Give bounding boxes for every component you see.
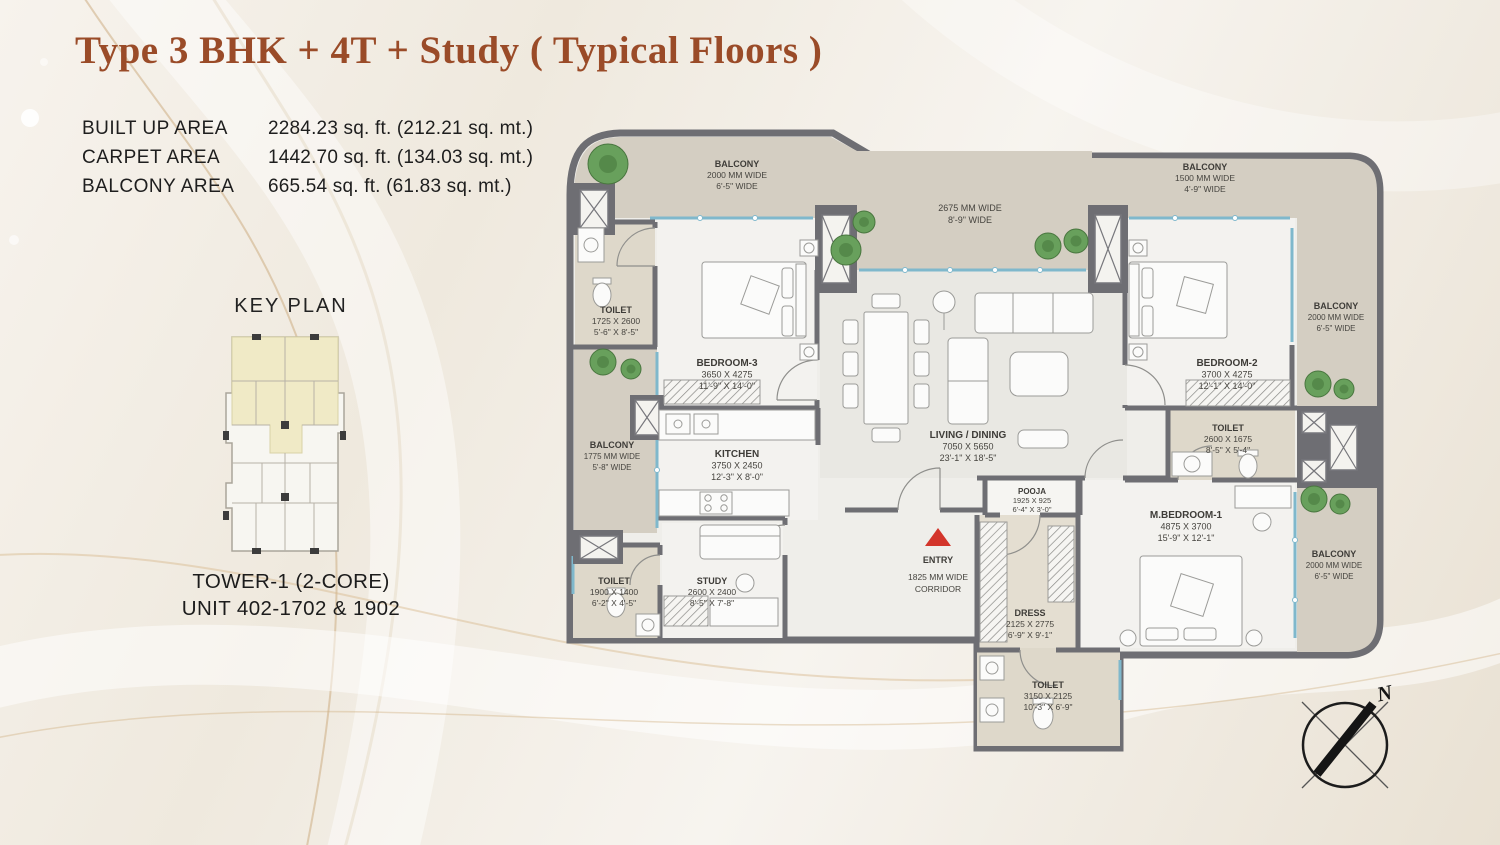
svg-text:1925 X 925: 1925 X 925 xyxy=(1013,496,1051,505)
svg-text:2600 X 2400: 2600 X 2400 xyxy=(688,587,736,597)
compass-icon: N xyxy=(1302,680,1395,788)
brochure-page: Type 3 BHK + 4T + Study ( Typical Floors… xyxy=(0,0,1500,845)
svg-text:4'-9" WIDE: 4'-9" WIDE xyxy=(1184,184,1226,194)
svg-text:BALCONY: BALCONY xyxy=(1314,301,1359,311)
svg-text:1725 X 2600: 1725 X 2600 xyxy=(592,316,640,326)
svg-text:6'-9" X 9'-1": 6'-9" X 9'-1" xyxy=(1008,630,1052,640)
svg-text:TOILET: TOILET xyxy=(1032,680,1064,690)
svg-text:2675 MM WIDE: 2675 MM WIDE xyxy=(938,203,1002,213)
svg-text:23'-1" X 18'-5": 23'-1" X 18'-5" xyxy=(940,453,997,463)
svg-text:3150 X 2125: 3150 X 2125 xyxy=(1024,691,1072,701)
svg-text:2000 MM WIDE: 2000 MM WIDE xyxy=(1306,561,1362,570)
area-value: 665.54 sq. ft. (61.83 sq. mt.) xyxy=(268,172,512,201)
svg-text:2600 X 1675: 2600 X 1675 xyxy=(1204,434,1252,444)
svg-text:8'-5" X 7'-8": 8'-5" X 7'-8" xyxy=(690,598,734,608)
svg-text:TOILET: TOILET xyxy=(1212,423,1244,433)
svg-text:7050 X 5650: 7050 X 5650 xyxy=(942,442,993,452)
area-label: CARPET AREA xyxy=(82,143,268,172)
svg-text:4875 X 3700: 4875 X 3700 xyxy=(1160,522,1211,532)
svg-text:11'-9" X 14'-0": 11'-9" X 14'-0" xyxy=(699,381,755,391)
svg-text:6'-4" X 3'-0": 6'-4" X 3'-0" xyxy=(1012,505,1051,514)
key-plan-title: KEY PLAN xyxy=(151,295,431,318)
unit-label: UNIT 402-1702 & 1902 xyxy=(131,595,451,622)
svg-text:3750 X 2450: 3750 X 2450 xyxy=(711,461,762,471)
svg-text:TOILET: TOILET xyxy=(598,576,630,586)
svg-text:2000 MM WIDE: 2000 MM WIDE xyxy=(707,170,767,180)
svg-text:1900 X 1400: 1900 X 1400 xyxy=(590,587,638,597)
area-table: BUILT UP AREA 2284.23 sq. ft. (212.21 sq… xyxy=(82,114,533,201)
room-label: BALCONY xyxy=(715,159,760,169)
floor-plan: BALCONY 2000 MM WIDE 6'-5" WIDE 2675 MM … xyxy=(558,113,1413,813)
svg-text:15'-9" X 12'-1": 15'-9" X 12'-1" xyxy=(1158,533,1215,543)
svg-text:BEDROOM-3: BEDROOM-3 xyxy=(696,358,758,369)
svg-text:DRESS: DRESS xyxy=(1014,608,1045,618)
svg-text:3700 X 4275: 3700 X 4275 xyxy=(1201,370,1252,380)
area-label: BUILT UP AREA xyxy=(82,114,268,143)
svg-text:CORRIDOR: CORRIDOR xyxy=(915,584,961,594)
svg-text:5'-8" WIDE: 5'-8" WIDE xyxy=(592,463,631,472)
svg-text:M.BEDROOM-1: M.BEDROOM-1 xyxy=(1150,510,1223,521)
svg-text:1500 MM WIDE: 1500 MM WIDE xyxy=(1175,173,1235,183)
svg-text:6'-5" WIDE: 6'-5" WIDE xyxy=(1314,572,1353,581)
area-row: CARPET AREA 1442.70 sq. ft. (134.03 sq. … xyxy=(82,143,533,172)
svg-text:1825 MM WIDE: 1825 MM WIDE xyxy=(908,572,968,582)
svg-text:8'-9" WIDE: 8'-9" WIDE xyxy=(948,215,992,225)
svg-text:TOILET: TOILET xyxy=(600,305,632,315)
svg-text:LIVING / DINING: LIVING / DINING xyxy=(930,430,1007,441)
page-title: Type 3 BHK + 4T + Study ( Typical Floors… xyxy=(75,28,975,73)
svg-text:6'-2" X 4'-5": 6'-2" X 4'-5" xyxy=(592,598,636,608)
svg-text:2000 MM WIDE: 2000 MM WIDE xyxy=(1308,313,1364,322)
svg-text:BALCONY: BALCONY xyxy=(1183,162,1228,172)
svg-text:STUDY: STUDY xyxy=(697,576,728,586)
area-value: 1442.70 sq. ft. (134.03 sq. mt.) xyxy=(268,143,533,172)
svg-text:6'-5" WIDE: 6'-5" WIDE xyxy=(716,181,758,191)
svg-text:5'-6" X 8'-5": 5'-6" X 8'-5" xyxy=(594,327,638,337)
svg-text:2125 X 2775: 2125 X 2775 xyxy=(1006,619,1054,629)
key-plan-diagram xyxy=(222,333,350,558)
tower-label: TOWER-1 (2-CORE) xyxy=(131,568,451,595)
svg-text:12'-3" X 8'-0": 12'-3" X 8'-0" xyxy=(711,472,763,482)
svg-text:6'-5" WIDE: 6'-5" WIDE xyxy=(1316,324,1355,333)
area-row: BUILT UP AREA 2284.23 sq. ft. (212.21 sq… xyxy=(82,114,533,143)
svg-text:KITCHEN: KITCHEN xyxy=(715,449,759,460)
area-label: BALCONY AREA xyxy=(82,172,268,201)
area-value: 2284.23 sq. ft. (212.21 sq. mt.) xyxy=(268,114,533,143)
svg-text:12'-1" X 14'-0": 12'-1" X 14'-0" xyxy=(1199,381,1256,391)
svg-text:BALCONY: BALCONY xyxy=(1312,549,1357,559)
svg-text:8'-5" X 5'-4": 8'-5" X 5'-4" xyxy=(1206,445,1250,455)
svg-text:1775 MM WIDE: 1775 MM WIDE xyxy=(584,452,640,461)
svg-text:BALCONY: BALCONY xyxy=(590,440,635,450)
svg-text:BEDROOM-2: BEDROOM-2 xyxy=(1196,358,1258,369)
area-row: BALCONY AREA 665.54 sq. ft. (61.83 sq. m… xyxy=(82,172,533,201)
compass-north-label: N xyxy=(1374,680,1396,707)
tower-unit-caption: TOWER-1 (2-CORE) UNIT 402-1702 & 1902 xyxy=(131,568,451,622)
svg-text:3650 X 4275: 3650 X 4275 xyxy=(701,370,752,380)
svg-text:ENTRY: ENTRY xyxy=(923,555,953,565)
svg-text:10'-3" X 6'-9": 10'-3" X 6'-9" xyxy=(1024,702,1073,712)
svg-text:POOJA: POOJA xyxy=(1018,487,1046,496)
